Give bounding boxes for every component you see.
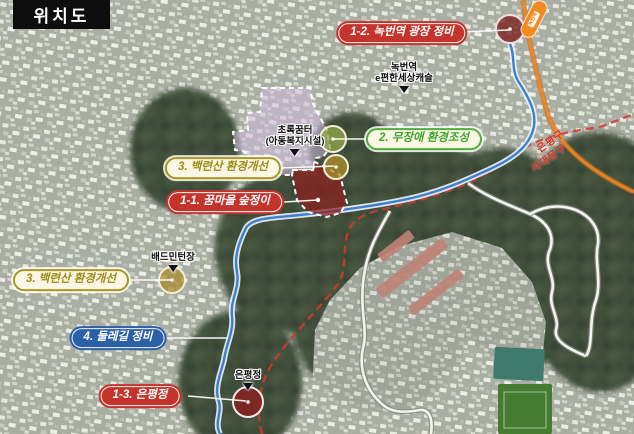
callout-barrier-free: 2. 무장애 환경조성 [366, 128, 482, 150]
poi-childcare-line1: 초록꿈터 [266, 125, 325, 136]
sports-fields [493, 347, 552, 434]
callout-pavilion: 1-3. 은평정 [101, 386, 180, 406]
poi-apartment: 녹번역 e편한세상캐슬 [375, 62, 433, 93]
pointer-triangle [243, 383, 253, 390]
subway-station-name: 녹번역 [527, 10, 540, 27]
map-graphics [0, 0, 634, 434]
poi-childcare-line2: (아동복지시설) [266, 136, 325, 147]
connector-dot [316, 198, 320, 202]
pointer-triangle [399, 86, 409, 93]
poi-pavilion: 은평정 [235, 370, 261, 390]
pointer-triangle [290, 149, 300, 156]
callout-nokbeon-plaza: 1-2. 녹번역 광장 정비 [338, 23, 465, 43]
poi-pavilion-line1: 은평정 [235, 370, 261, 381]
pointer-triangle [168, 265, 178, 272]
poi-badminton: 배드민턴장 [151, 252, 195, 272]
location-map: 위치도 1-2. 녹번역 광장 정비 2. 무장애 환경조성 3. 백련산 환경… [0, 0, 634, 434]
poi-apartment-line1: 녹번역 [375, 62, 433, 73]
callout-baekryeonsan-upper: 3. 백련산 환경개선 [165, 157, 281, 179]
poi-badminton-line1: 배드민턴장 [151, 252, 195, 263]
poi-childcare: 초록꿈터 (아동복지시설) [266, 125, 325, 156]
callout-dream-village: 1-1. 꿈마을 숲정이 [168, 192, 282, 212]
callout-trail-maintenance: 4. 둘레길 정비 [72, 328, 165, 348]
callout-baekryeonsan-lower: 3. 백련산 환경개선 [13, 269, 129, 291]
page-title: 위치도 [13, 0, 110, 29]
poi-apartment-line2: e편한세상캐슬 [375, 73, 433, 84]
